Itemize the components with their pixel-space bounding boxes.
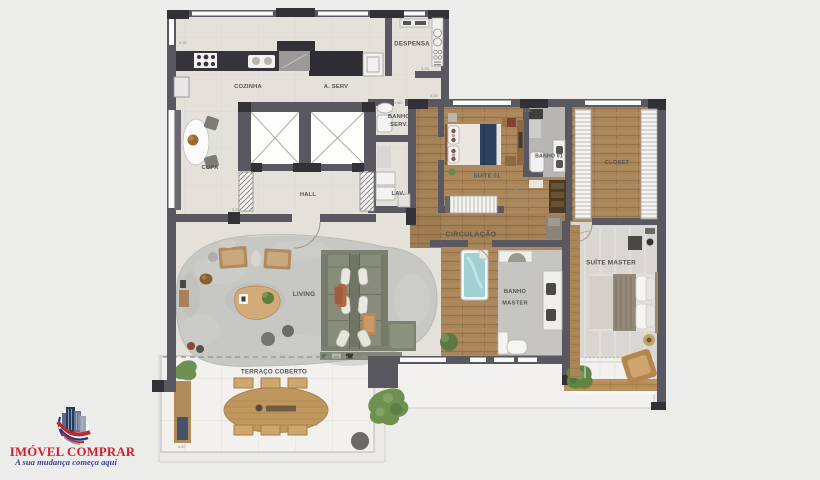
svg-text:COPA: COPA — [201, 165, 219, 171]
svg-text:SUÍTE MASTER: SUÍTE MASTER — [586, 258, 636, 267]
svg-text:1.95: 1.95 — [412, 242, 421, 247]
svg-text:MASTER: MASTER — [502, 301, 528, 307]
svg-text:1.75: 1.75 — [421, 66, 430, 71]
svg-text:A sua mudança começa aqui: A sua mudança começa aqui — [14, 457, 117, 467]
svg-text:HALL: HALL — [300, 192, 317, 198]
svg-text:CIRCULAÇÃO: CIRCULAÇÃO — [445, 230, 496, 239]
svg-text:BANHO: BANHO — [504, 289, 527, 295]
svg-text:1.60: 1.60 — [394, 100, 403, 105]
svg-text:LAV.: LAV. — [391, 191, 404, 197]
svg-text:A. SERV: A. SERV — [324, 84, 349, 90]
svg-text:DESPENSA: DESPENSA — [394, 41, 430, 48]
svg-text:LIVING: LIVING — [293, 291, 316, 298]
svg-text:5.87: 5.87 — [178, 444, 187, 449]
svg-text:1.30: 1.30 — [524, 108, 533, 113]
svg-text:SERV.: SERV. — [390, 122, 408, 128]
svg-text:SUÍTE 01: SUÍTE 01 — [474, 172, 501, 180]
svg-text:TERRAÇO COBERTO: TERRAÇO COBERTO — [241, 369, 307, 376]
svg-text:BANHO: BANHO — [388, 114, 411, 120]
svg-text:4.35: 4.35 — [430, 93, 439, 98]
svg-text:COZINHA: COZINHA — [234, 84, 262, 90]
svg-text:0.92: 0.92 — [179, 40, 188, 45]
svg-text:3.31: 3.31 — [232, 207, 241, 212]
svg-text:CLOSET: CLOSET — [605, 160, 630, 166]
svg-text:BANHO 01: BANHO 01 — [535, 154, 563, 160]
